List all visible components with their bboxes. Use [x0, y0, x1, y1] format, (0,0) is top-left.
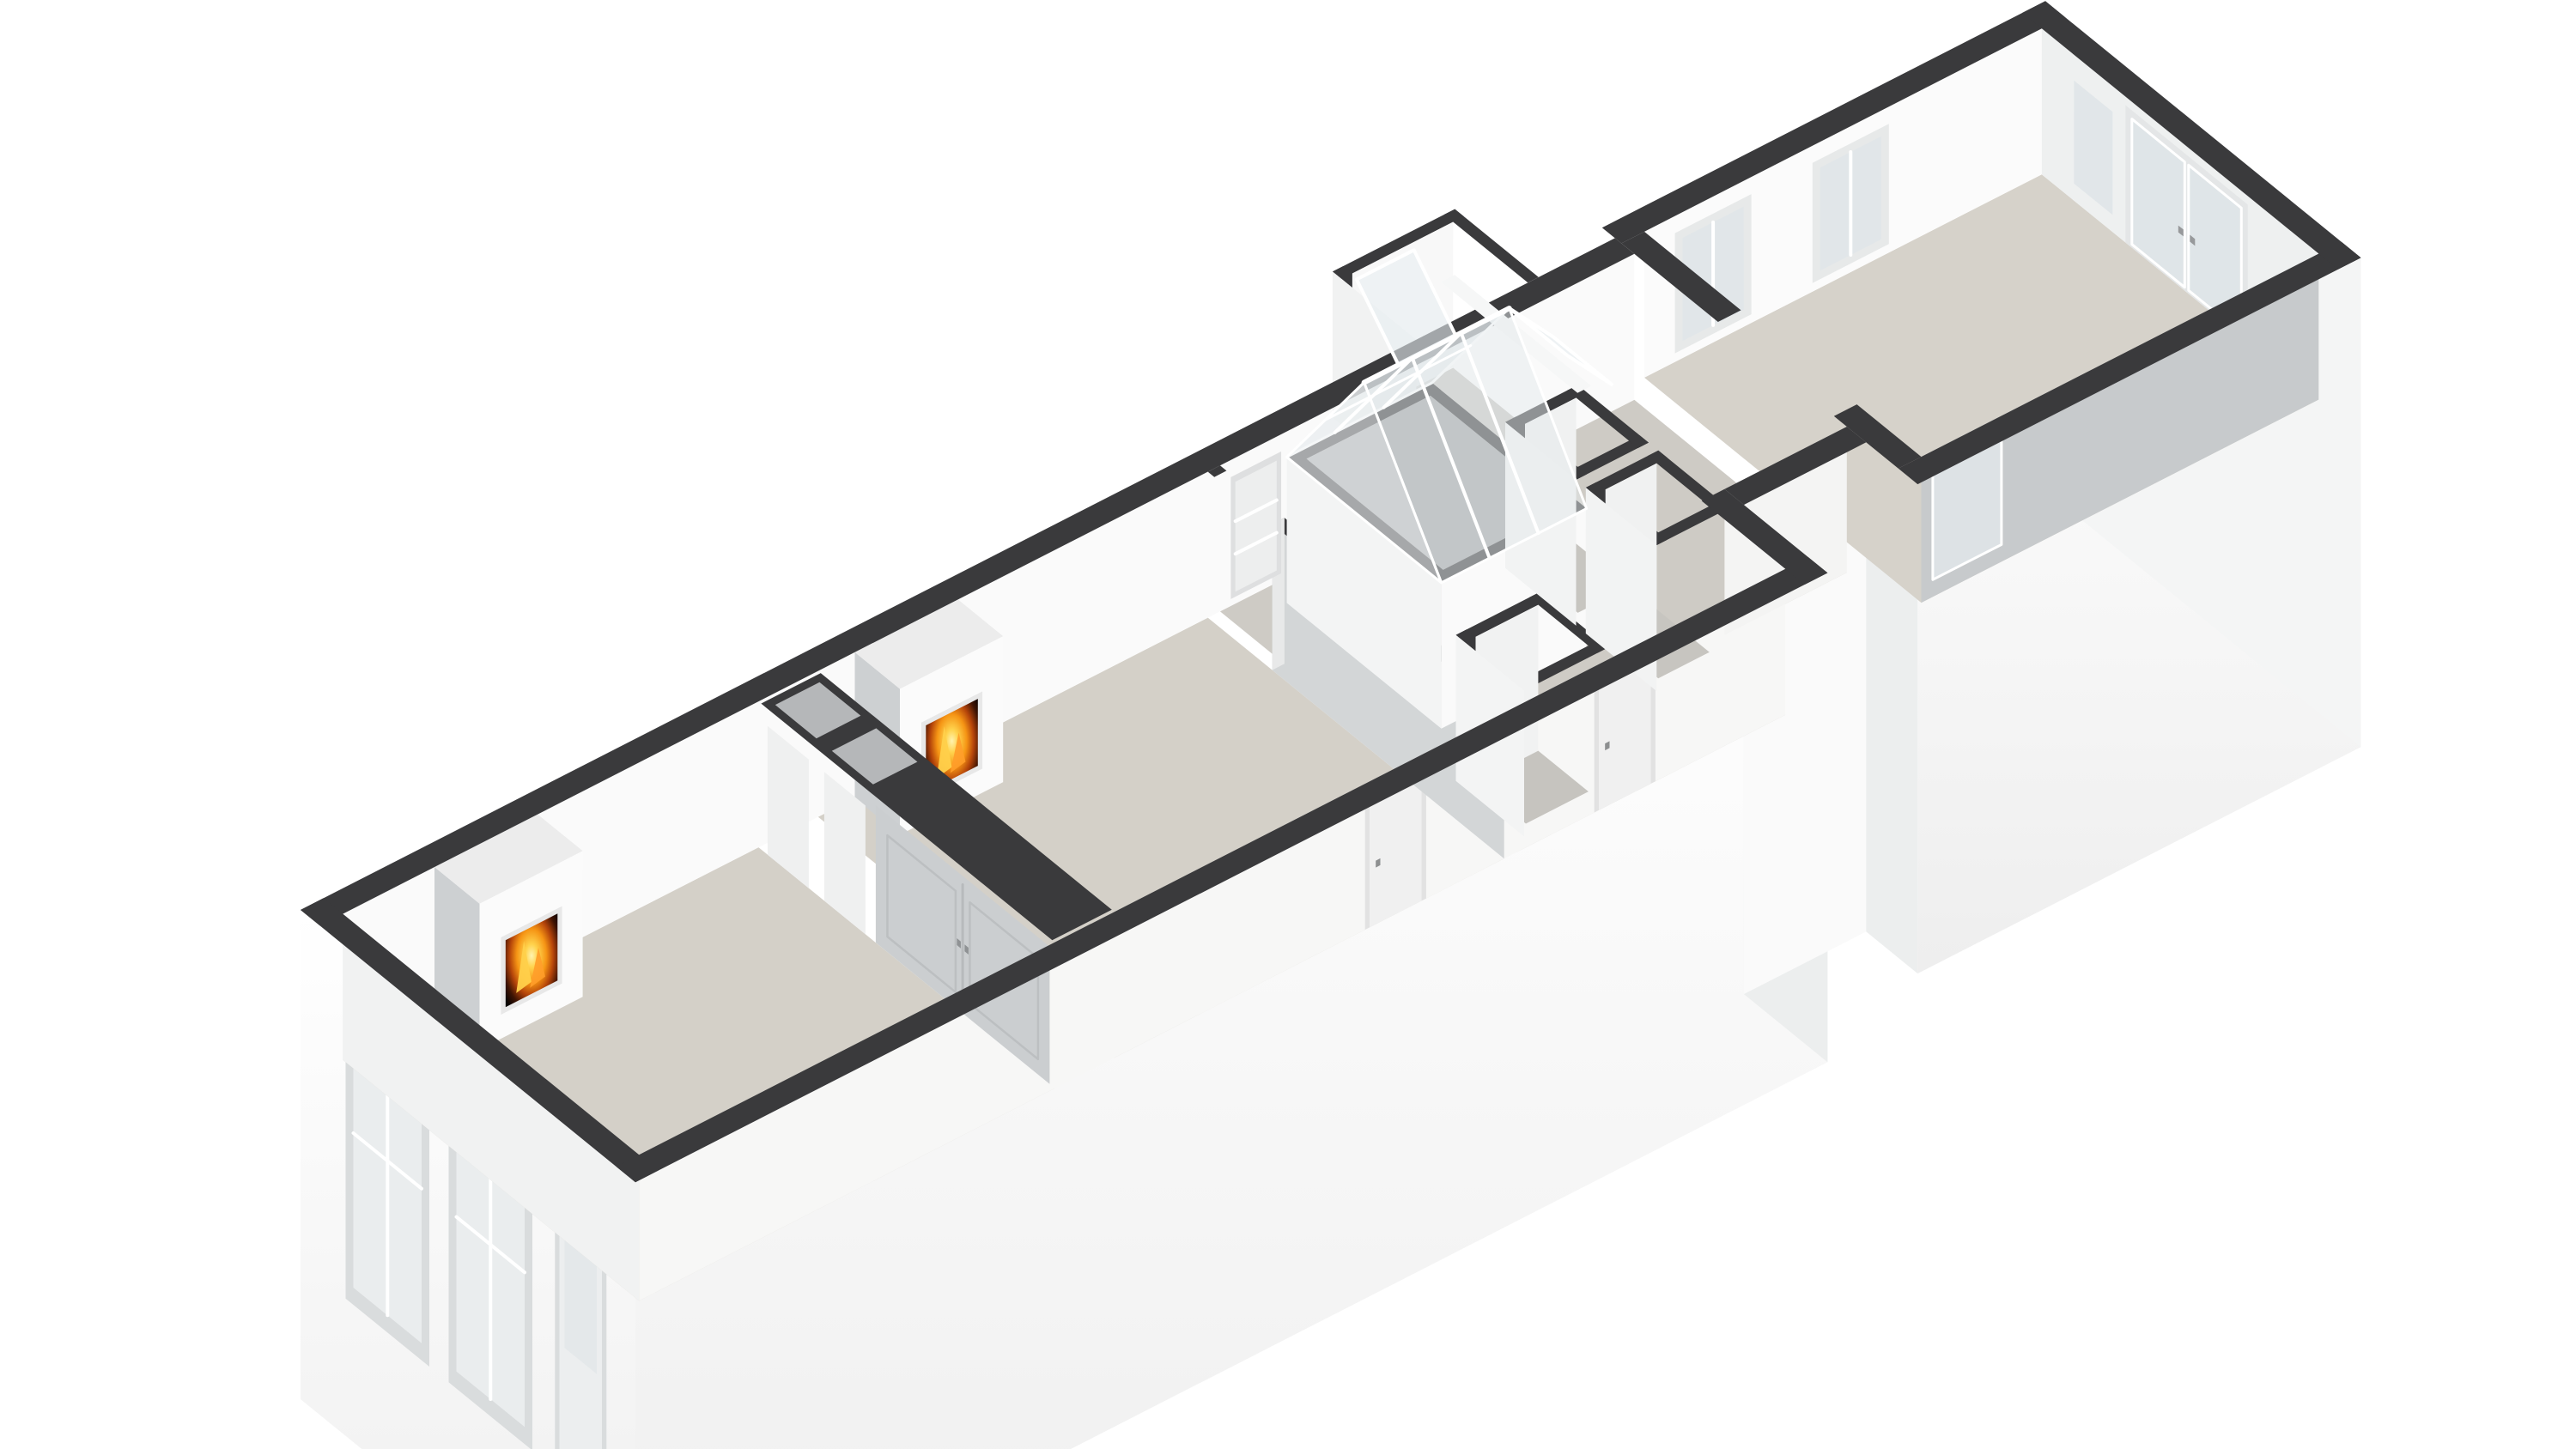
floor-plan-canvas: [0, 0, 2576, 1449]
floor-plan-stage: [0, 0, 2576, 1449]
hall-niche-interior: [1236, 461, 1277, 592]
